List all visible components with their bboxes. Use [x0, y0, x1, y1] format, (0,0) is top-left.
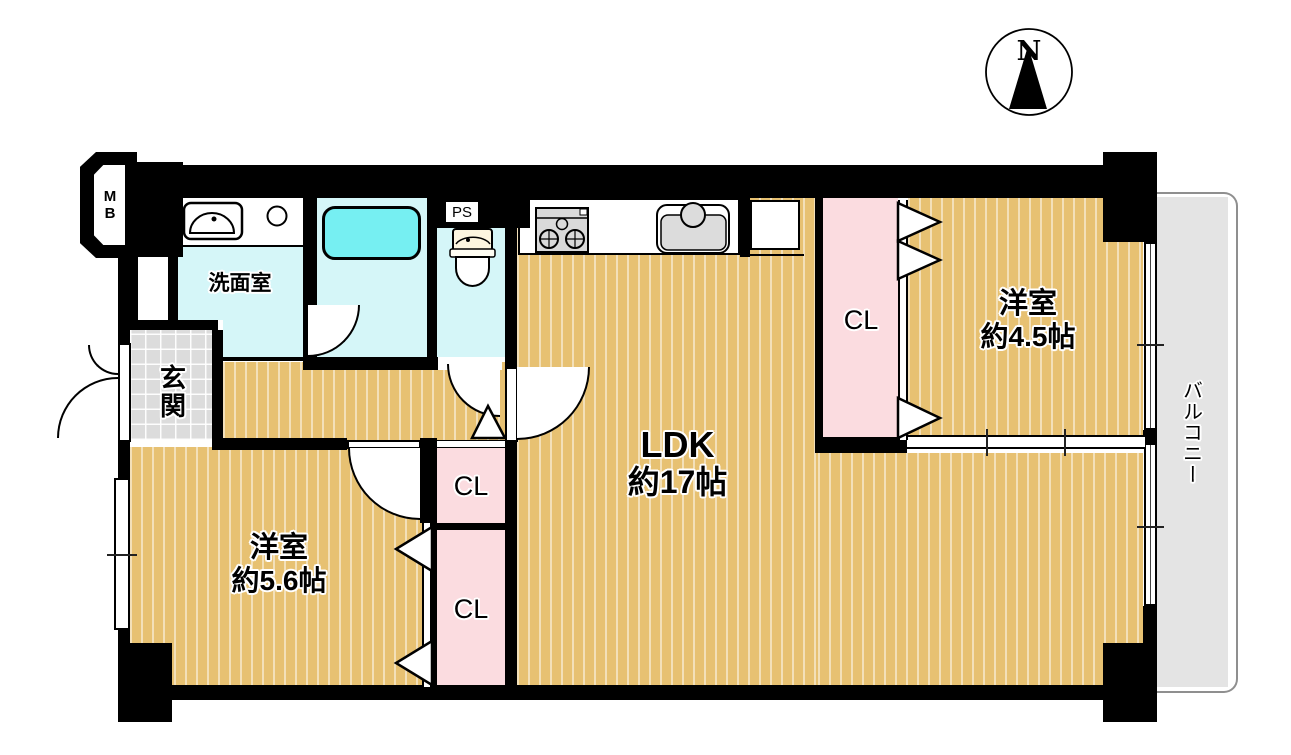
stove-icon: [536, 208, 588, 252]
label-ldk: LDK 約17帖: [595, 426, 760, 500]
label-closet-upper: CL: [441, 469, 501, 503]
pipe-space-box: PS: [444, 200, 480, 224]
sink-icon: [657, 203, 729, 253]
compass-north-label: N: [1017, 36, 1042, 67]
label-ldk-name: LDK: [641, 425, 715, 465]
closet-upper-folding-door-icon: [472, 406, 505, 438]
washbasin-icon: [184, 203, 242, 239]
label-closet-lower: CL: [441, 592, 501, 626]
toilet-icon: [450, 229, 495, 286]
pipe-space-label: PS: [452, 204, 472, 221]
label-west56-size: 約5.6帖: [232, 565, 327, 596]
label-west45-size: 約4.5帖: [981, 321, 1076, 352]
meter-box-label: MB: [96, 170, 124, 240]
washing-machine-icon: [268, 207, 287, 226]
label-west56: 洋室 約5.6帖: [199, 528, 359, 600]
compass: N: [986, 29, 1072, 115]
label-west45-name: 洋室: [999, 288, 1057, 320]
label-closet-45: CL: [831, 303, 891, 337]
label-west56-name: 洋室: [250, 532, 308, 564]
label-genkan: 玄関: [154, 344, 190, 440]
label-washroom: 洗面室: [190, 268, 290, 296]
closet45-folding-door-icon: [898, 203, 940, 438]
label-ldk-size: 約17帖: [628, 465, 728, 501]
decor-layer: N: [0, 0, 1291, 755]
label-balcony: バルコニー: [1176, 368, 1206, 496]
label-west45: 洋室 約4.5帖: [948, 284, 1108, 356]
floor-plan: N MB PS 洗面室 LDK 約17帖 洋室 約5.6帖 洋室 約4.5帖 C…: [0, 0, 1291, 755]
closet-lower-folding-door-icon: [396, 527, 432, 685]
